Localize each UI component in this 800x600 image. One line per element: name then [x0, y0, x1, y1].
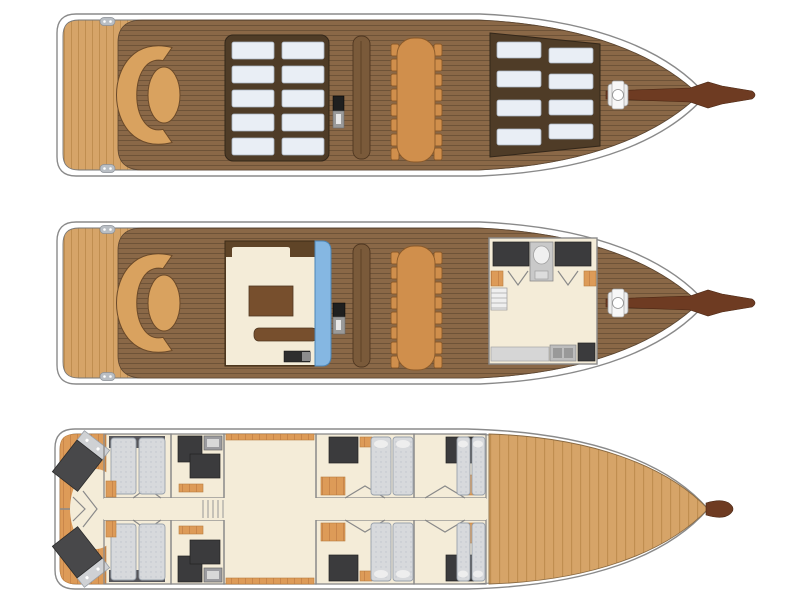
salon [225, 241, 331, 366]
anchor-winch [608, 289, 628, 317]
stove [550, 345, 576, 361]
salon-sideboard [254, 328, 317, 341]
main-deck-plan [50, 219, 762, 389]
deck-plan-diagram [0, 0, 800, 600]
helm-console [333, 96, 344, 128]
seat-cushion [491, 271, 503, 286]
midship-sunpads [225, 35, 329, 161]
cleat [100, 165, 115, 173]
deck-bench [353, 36, 370, 159]
cleat [100, 373, 115, 381]
fridge [578, 343, 595, 361]
salon-floor-step [232, 247, 290, 259]
stairs [491, 288, 507, 310]
companionway [530, 242, 553, 281]
helm-console [333, 303, 345, 334]
open-room-trim [226, 434, 314, 440]
salon-table [249, 286, 293, 316]
sun-deck-plan [50, 11, 762, 181]
lower-deck-plan [49, 425, 749, 593]
bow-sunpads [490, 33, 600, 157]
dining-table [391, 38, 442, 162]
deck-bench [353, 244, 370, 367]
counter-starboard [555, 242, 591, 266]
anchor-winch [608, 81, 628, 109]
twin-beds [106, 436, 165, 497]
bowsprit-stub [706, 501, 733, 518]
oval-table [148, 67, 180, 123]
dining-table [391, 246, 442, 370]
bow-wood-sole [489, 434, 708, 584]
cleat [100, 18, 115, 26]
blue-side-seat [315, 241, 331, 366]
galley-wheelhouse [489, 238, 597, 364]
twin-beds [106, 521, 165, 582]
sun-deck-svg [50, 11, 762, 181]
seat-cushion [584, 271, 596, 286]
counter-port [493, 242, 529, 266]
corridor [104, 498, 486, 520]
lower-deck-svg [49, 425, 749, 593]
open-room-trim [226, 578, 314, 584]
tv-cabinet [284, 351, 311, 362]
main-deck-svg [50, 219, 762, 389]
oval-table [148, 275, 180, 331]
cleat [100, 226, 115, 234]
sink-counter [491, 347, 549, 361]
